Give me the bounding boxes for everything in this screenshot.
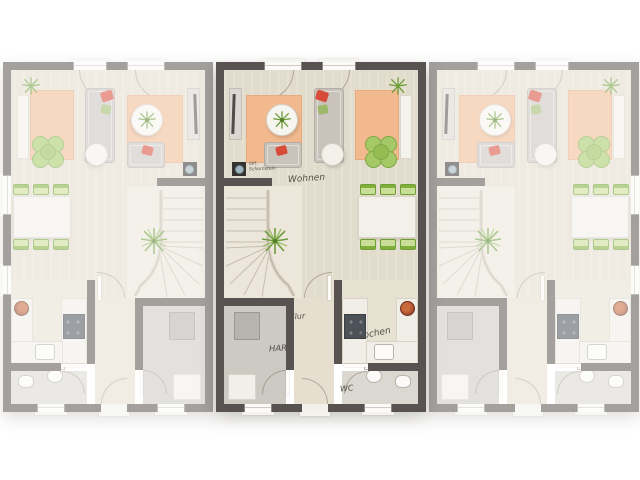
chimney-icon [232,162,246,176]
wall-chimney [437,178,485,186]
dining-chair [613,239,629,250]
dining-chair [33,239,49,250]
terrace-window [264,62,302,70]
house-unit: Wohnen Flur HAR Kochen WC opt. Schornste… [216,62,426,412]
window-sill [35,412,67,415]
wall-top [429,62,639,70]
side-window [631,175,639,215]
wall-stair-hall [135,298,205,306]
side-table [85,143,108,166]
wall-kitchen-wc [368,363,418,371]
entrance-door [302,404,328,412]
corner-plant-icon [21,76,41,96]
stove [557,314,579,339]
table-plant-icon [137,110,157,130]
living-hall-door-leaf [98,276,101,300]
wc-door-leaf [344,364,368,367]
label-chimney-line2: Schornstein [249,166,276,172]
wc-sink [608,375,624,388]
dining-table [13,196,71,238]
label-chimney: opt. Schornstein [249,161,276,173]
green-pillow [100,104,111,115]
toilet-bowl [366,369,382,383]
flower-pouf [578,136,610,168]
entrance-step [300,412,330,416]
label-wc: WC [340,383,354,393]
wall-right [3,62,11,412]
dining-chair [593,184,609,195]
terrace-window [73,62,107,70]
wc-sink [18,375,34,388]
wc-window [364,404,392,412]
kitchen-sink [374,344,394,360]
side-window [3,265,11,295]
unit-left: Wohnen Flur HAR Kochen WC opt. Schornste… [3,62,213,412]
dining-chair [400,239,416,250]
storage-chest [441,374,469,400]
corner-plant-icon [601,76,621,96]
window-sill [242,412,274,415]
stair-plant-icon [260,226,290,256]
stove [63,314,85,339]
window-sill [155,412,187,415]
wall-right [631,62,639,412]
dining-chair [360,184,376,195]
har-window [157,404,185,412]
table-plant-icon [485,110,505,130]
terrace-window [322,62,356,70]
wall-top [3,62,213,70]
dining-chair [53,184,69,195]
dining-chair [613,184,629,195]
dining-chair [380,239,396,250]
dining-chair [33,184,49,195]
window-bench [613,95,625,159]
wall-hall-kitchen [547,280,555,364]
flower-pouf [365,136,397,168]
terrace-window [127,62,165,70]
dining-chair [53,239,69,250]
chimney-icon [445,162,459,176]
kitchen-sink [35,344,55,360]
flower-pouf [32,136,64,168]
wall-chimney [224,178,272,186]
washing-machine [447,312,473,340]
label-hallway: Flur [290,311,306,321]
har-window [244,404,272,412]
washing-machine [234,312,260,340]
wc-door-leaf [61,364,85,367]
unit-middle: Wohnen Flur HAR Kochen WC opt. Schornste… [216,62,426,412]
window-sill [575,412,607,415]
wall-left [216,62,224,412]
dining-chair [593,239,609,250]
wall-left [429,62,437,412]
washing-machine [169,312,195,340]
dining-table [358,196,416,238]
wall-chimney [157,178,205,186]
wall-hall-kitchen [87,280,95,364]
wall-hall-har [499,306,507,370]
wall-stair-hall [224,298,294,306]
toilet-bowl [579,369,595,383]
dining-chair [400,184,416,195]
har-window [457,404,485,412]
wall-left [205,62,213,412]
wall-kitchen-wc [11,363,61,371]
entrance-door [101,404,127,412]
entrance-door [515,404,541,412]
har-door-leaf [140,370,143,396]
window-sill [455,412,487,415]
chimney-icon [183,162,197,176]
fruit-bowl [400,301,415,316]
side-table [534,143,557,166]
wall-kitchen-wc [581,363,631,371]
wall-hall-kitchen [334,280,342,364]
side-window [3,175,11,215]
entrance-step [513,412,543,416]
wc-sink [395,375,411,388]
green-pillow [530,104,541,115]
house-unit: Wohnen Flur HAR Kochen WC opt. Schornste… [3,62,213,412]
dining-chair [573,239,589,250]
floorplan: Wohnen Flur HAR Kochen WC opt. Schornste… [3,62,639,412]
label-chimney-line1: opt. [249,161,258,166]
table-plant-icon [272,110,292,130]
fruit-bowl [14,301,29,316]
unit-right: Wohnen Flur HAR Kochen WC opt. Schornste… [429,62,639,412]
wall-top [216,62,426,70]
dining-chair [360,239,376,250]
green-pillow [317,104,328,115]
storage-chest [228,374,256,400]
side-table [321,143,344,166]
house-unit: Wohnen Flur HAR Kochen WC opt. Schornste… [429,62,639,412]
label-utility-room: HAR [269,344,288,355]
wc-door-leaf [557,364,581,367]
dining-chair [380,184,396,195]
dining-chair [13,184,29,195]
har-door-leaf [286,370,289,396]
wc-window [577,404,605,412]
living-hall-door-leaf [328,276,331,300]
window-bench [400,95,412,159]
dining-chair [13,239,29,250]
storage-chest [173,374,201,400]
wc-window [37,404,65,412]
terrace-window [477,62,515,70]
corner-plant-icon [388,76,408,96]
dining-chair [573,184,589,195]
stair-plant-icon [473,226,503,256]
wall-stair-hall [437,298,507,306]
toilet-bowl [47,369,63,383]
stair-plant-icon [139,226,169,256]
terrace-window [535,62,569,70]
side-window [631,265,639,295]
wall-hall-har [135,306,143,370]
fruit-bowl [613,301,628,316]
living-hall-door-leaf [541,276,544,300]
window-sill [362,412,394,415]
wall-right [418,62,426,412]
window-bench [17,95,29,159]
kitchen-sink [587,344,607,360]
dining-table [571,196,629,238]
har-door-leaf [499,370,502,396]
entrance-step [99,412,129,416]
